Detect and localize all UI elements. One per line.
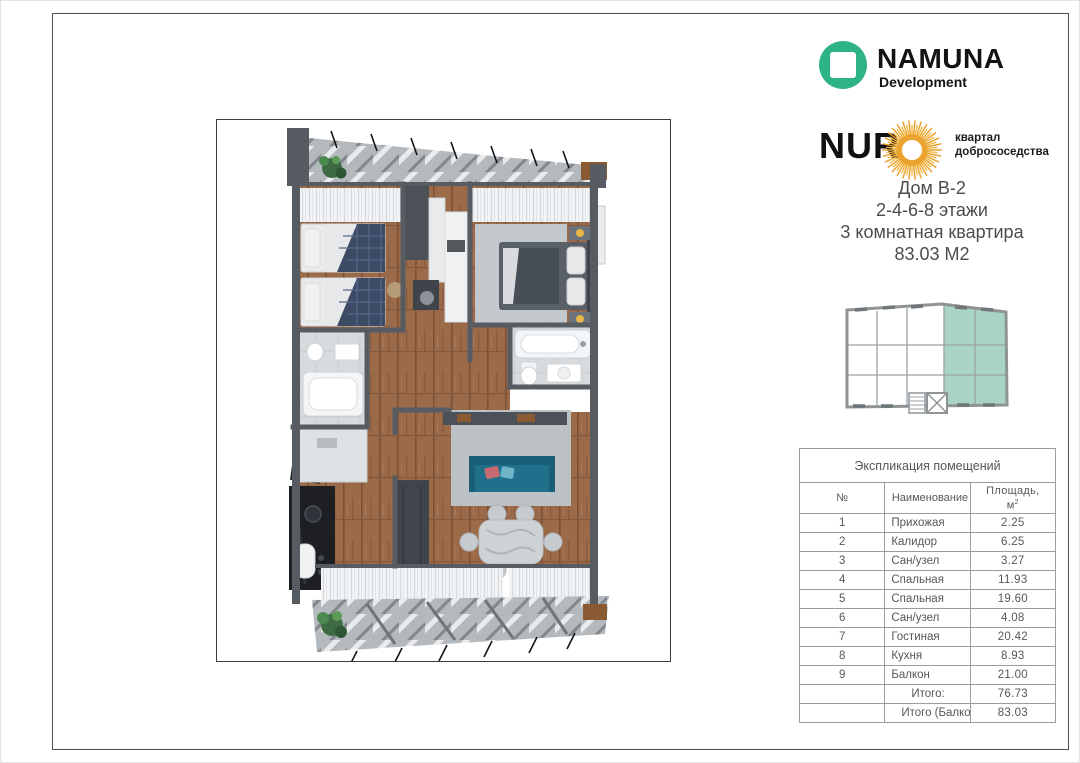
double-bed — [499, 240, 593, 312]
namuna-square-icon — [830, 52, 856, 78]
table-row: 8Кухня8.93 — [800, 647, 1056, 666]
sink — [335, 344, 359, 360]
table-row: 5Спальная19.60 — [800, 590, 1056, 609]
curtains-bedroom-small — [297, 188, 401, 222]
area-label: 83.03 М2 — [801, 243, 1063, 265]
elevator-icon — [927, 393, 947, 413]
balcony-top — [309, 131, 607, 186]
lamp-icon — [576, 229, 584, 237]
toilet — [521, 367, 537, 385]
table-row-total: Итого:76.73 — [800, 685, 1056, 704]
floor-plan-render — [217, 120, 670, 661]
lamp-icon — [576, 315, 584, 323]
namuna-logo: NAMUNA Development — [819, 41, 1069, 97]
table-header-row: № Наименование Площадь,м2 — [800, 483, 1056, 514]
sofa — [469, 456, 555, 492]
dining-table — [479, 520, 543, 564]
curtains-bedroom-master — [472, 188, 592, 222]
wood-ledge-bottom — [583, 604, 607, 620]
kitchen-tall-units — [445, 212, 467, 322]
table-row: 9Балкон21.00 — [800, 666, 1056, 685]
namuna-name: NAMUNA — [877, 43, 1004, 75]
floor-plan-frame — [216, 119, 671, 662]
house-label: Дом В-2 — [801, 177, 1063, 199]
column-header-area: Площадь,м2 — [970, 483, 1055, 514]
table-row: 3Сан/узел3.27 — [800, 552, 1056, 571]
flyer-page: { "brand": { "namuna": { "name": "NAMUNA… — [0, 0, 1080, 763]
single-bed-1 — [301, 224, 385, 272]
table-row: 1Прихожая2.25 — [800, 514, 1056, 533]
table-row: 4Спальная11.93 — [800, 571, 1056, 590]
column-header-num: № — [800, 483, 885, 514]
curtains-bottom-right — [509, 566, 593, 600]
sun-icon — [875, 113, 949, 187]
kitchen-sink — [305, 506, 321, 522]
table-title: Экспликация помещений — [800, 449, 1056, 483]
nur-tagline: квартал добрососедства — [955, 131, 1049, 159]
building-diagram-svg — [837, 295, 1025, 425]
desk-chair — [420, 291, 434, 305]
apartment-heading: Дом В-2 2-4-6-8 этажи 3 комнатная кварти… — [801, 177, 1063, 265]
single-bed-2 — [301, 278, 385, 326]
table-row: 7Гостиная20.42 — [800, 628, 1056, 647]
table-row: 2Калидор6.25 — [800, 533, 1056, 552]
floors-label: 2-4-6-8 этажи — [801, 199, 1063, 221]
explication-table: Экспликация помещений № Наименование Пло… — [799, 448, 1056, 723]
namuna-circle-icon — [819, 41, 867, 89]
counter-marble — [297, 428, 367, 482]
toilet — [307, 343, 323, 361]
balcony-bottom — [312, 596, 609, 661]
table-row: 6Сан/узел4.08 — [800, 609, 1056, 628]
apartment-type-label: 3 комнатная квартира — [801, 221, 1063, 243]
stairs-icon — [909, 393, 925, 413]
curtains-bottom-left — [321, 566, 503, 600]
namuna-subtitle: Development — [879, 74, 967, 90]
bathroom-right — [515, 330, 591, 385]
table-row-total-balcony: Итого (Балкон 30%)83.03 — [800, 704, 1056, 723]
column-header-name: Наименование — [885, 483, 970, 514]
building-diagram — [837, 295, 1025, 425]
